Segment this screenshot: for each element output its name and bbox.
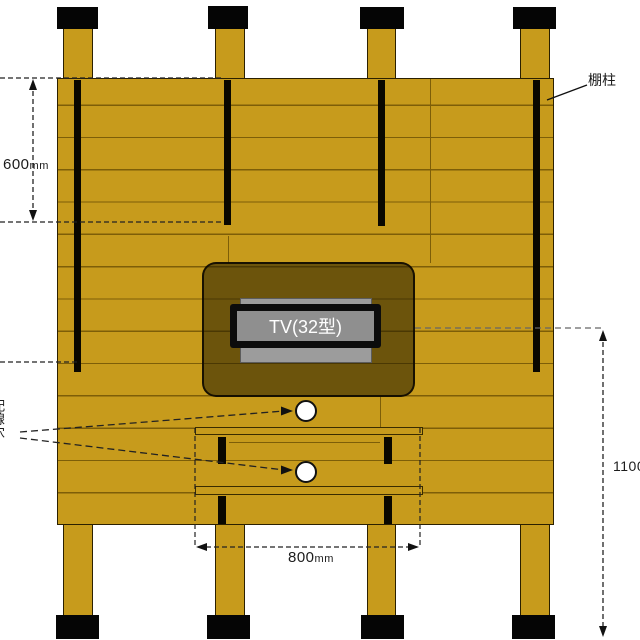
post-cap-4 [513, 7, 556, 29]
arrowhead-up [29, 79, 37, 90]
shelf-rail-segment [218, 496, 226, 524]
plank-seam [228, 236, 229, 263]
dimension-800-unit: mm [315, 553, 334, 565]
post-foot-2 [207, 615, 250, 639]
dimension-600-value: 600 [3, 156, 30, 173]
shelf-board-upper [195, 427, 423, 435]
plank-wall-tv-diagram: TV(32型) 棚柱 600mm 800mm 110 [0, 0, 640, 640]
shelf-rail-label: 棚柱 [588, 70, 616, 90]
shelf-rail-segment [384, 496, 392, 524]
cable-hole-upper [295, 400, 317, 422]
arrowhead-up [599, 330, 607, 341]
shelf-board-lower [195, 486, 423, 495]
post-foot-1 [56, 615, 99, 639]
tv-label: TV(32型) [269, 313, 342, 339]
post-foot-3 [361, 615, 404, 639]
wiring-label-clipped: 配線穴 [0, 399, 5, 443]
arrowhead-right [408, 543, 419, 551]
cable-hole-lower [295, 461, 317, 483]
tv-screen: TV(32型) [237, 311, 374, 341]
dimension-800-value: 800 [288, 549, 315, 566]
post-foot-4 [512, 615, 555, 639]
bottom-post-3 [367, 520, 396, 617]
shelf-rail-4 [533, 80, 540, 372]
plank-seam [380, 397, 381, 427]
dimension-600-label: 600mm [3, 156, 49, 173]
arrowhead-left [196, 543, 207, 551]
arrowhead-down [29, 210, 37, 221]
wiring-label-text: 配線穴 [0, 399, 4, 438]
arrowhead-down [599, 626, 607, 637]
post-cap-3 [360, 7, 404, 29]
bottom-post-2 [215, 520, 245, 617]
dimension-600-unit: mm [30, 160, 49, 172]
bottom-post-4 [520, 520, 550, 617]
dimension-800-label: 800mm [288, 549, 334, 566]
shelf-rail-3 [378, 80, 385, 226]
bottom-post-1 [63, 520, 93, 617]
shelf-inner-line [229, 442, 380, 443]
shelf-rail-1 [74, 80, 81, 372]
post-cap-1 [57, 7, 98, 29]
post-cap-2 [208, 6, 248, 29]
shelf-rail-segment [384, 437, 392, 464]
shelf-rail-segment [218, 437, 226, 464]
plank-seam [430, 79, 431, 263]
shelf-rail-2 [224, 80, 231, 225]
dimension-1100-label: 1100 [613, 458, 640, 474]
